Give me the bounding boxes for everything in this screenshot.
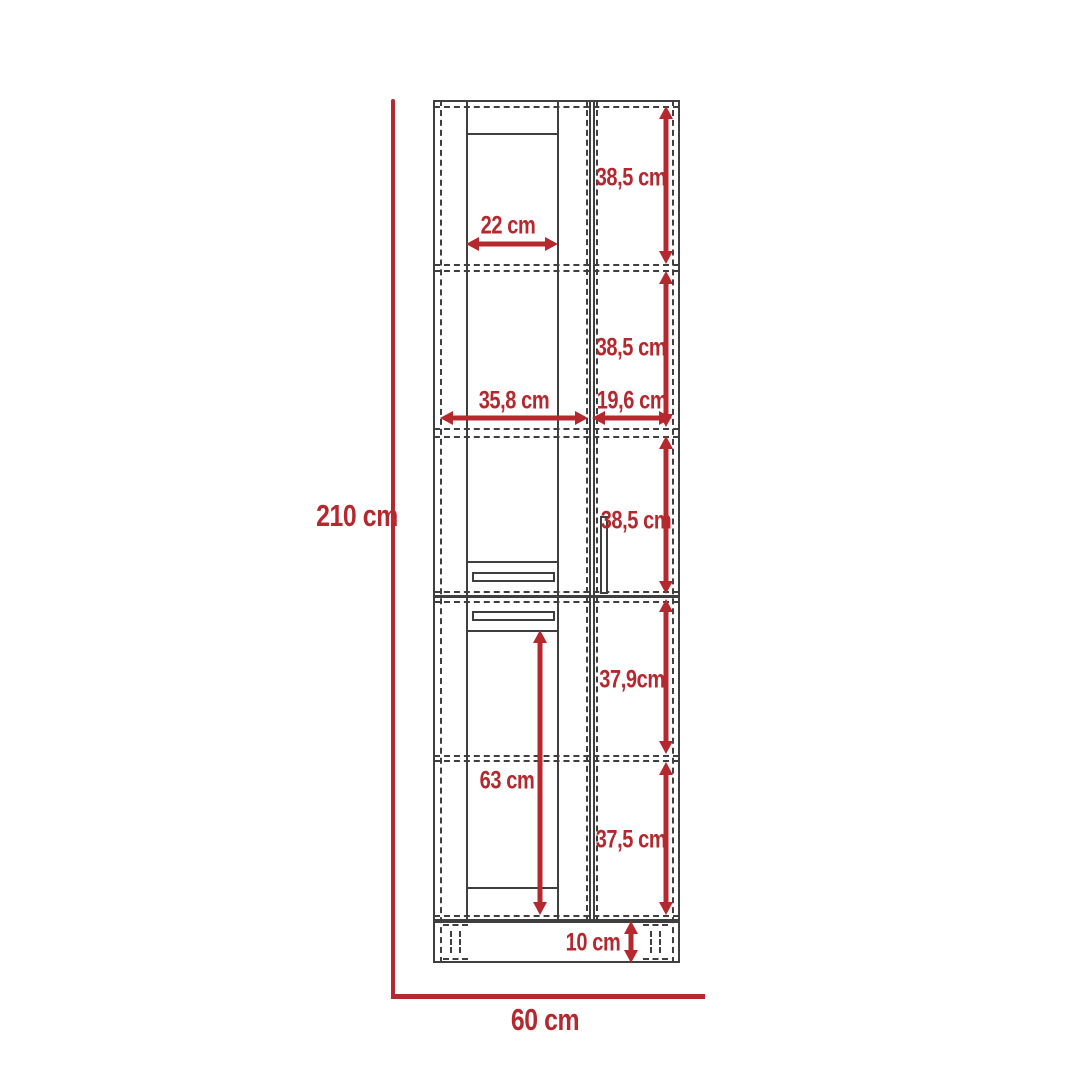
center-divider-line — [593, 100, 595, 921]
dim-label-compartment-4: 37,9cm — [599, 666, 664, 695]
door-edge-line-left — [466, 100, 468, 921]
center-divider-line — [589, 100, 591, 921]
dim-label-lower-door-height: 63 cm — [480, 767, 535, 796]
shelf-dash-line — [434, 760, 679, 762]
divider-dash-line-left — [586, 100, 588, 921]
dim-label-compartment-3: 38,5 cm — [601, 507, 672, 536]
door-edge-line-right — [557, 100, 559, 921]
shelf-dash-line — [434, 106, 679, 108]
lower-drawer-handle — [472, 611, 555, 621]
divider-dash-line-right — [596, 100, 598, 921]
leveling-foot-stem — [450, 931, 461, 953]
shelf-dash-line — [434, 601, 679, 603]
dim-label-compartment-1: 38,5 cm — [596, 164, 667, 193]
dim-label-total-width: 60 cm — [511, 1002, 579, 1038]
shelf-dash-line — [434, 591, 679, 593]
inner-dash-line-left — [440, 100, 442, 963]
shelf-dash-line — [434, 270, 679, 272]
door-top-rail-line — [466, 133, 559, 135]
dim-label-top-door-width: 22 cm — [481, 212, 536, 241]
mid-divider-line — [433, 595, 680, 598]
total-width-guide-line — [391, 994, 705, 999]
leveling-foot-right — [643, 924, 668, 960]
cabinet-dimension-diagram: 210 cm 60 cm 22 cm 35,8 cm 19,6 cm 38,5 … — [0, 0, 1090, 1090]
leveling-foot-left — [443, 924, 468, 960]
leveling-foot-stem — [650, 931, 661, 953]
dim-label-plinth-height: 10 cm — [566, 929, 621, 958]
shelf-dash-line — [434, 436, 679, 438]
shelf-dash-line — [434, 264, 679, 266]
dim-label-total-height: 210 cm — [316, 498, 398, 534]
upper-drawer-top-line — [466, 561, 559, 563]
shelf-dash-line — [434, 755, 679, 757]
total-height-guide-line — [391, 99, 395, 998]
dim-arrow-plinth-height — [624, 921, 638, 963]
dim-arrow-lower-door-height — [533, 630, 547, 915]
dim-label-right-section-width: 19,6 cm — [597, 387, 668, 416]
dim-label-compartment-2: 38,5 cm — [596, 334, 667, 363]
upper-drawer-handle — [472, 572, 555, 582]
dim-label-compartment-5: 37,5 cm — [596, 826, 667, 855]
bottom-dash-line — [434, 915, 679, 917]
shelf-dash-line — [434, 428, 679, 430]
dim-label-left-section-width: 35,8 cm — [479, 387, 550, 416]
